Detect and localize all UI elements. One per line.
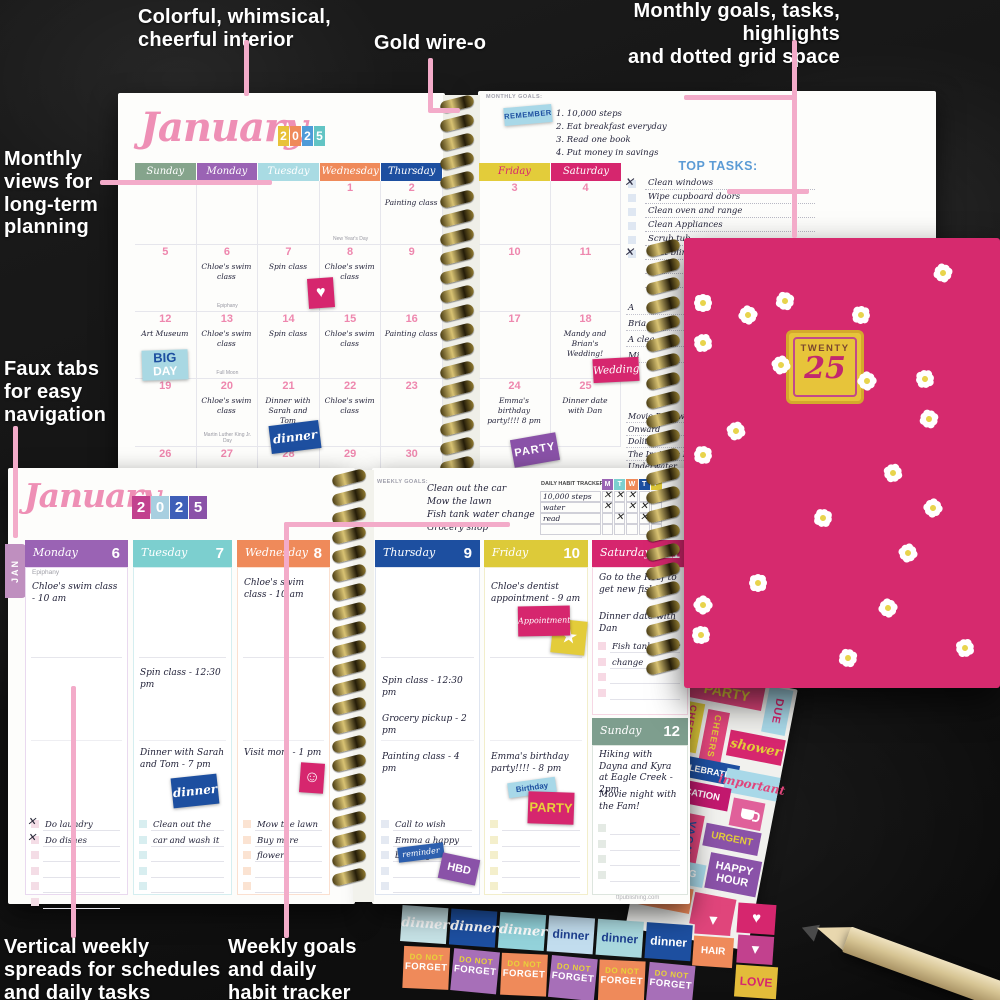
wire-loop <box>331 620 367 640</box>
cup-sticker-icon <box>729 797 766 831</box>
wire-loop <box>645 542 681 562</box>
wire-loop <box>645 504 681 524</box>
wire-loop <box>645 276 681 296</box>
habit-mark-x: ✕ <box>614 490 625 501</box>
calendar-date: 16 <box>381 313 442 325</box>
calendar-date: 13 <box>197 313 258 325</box>
year-digit-tile: 2 <box>278 126 289 146</box>
weekly-day-number: 6 <box>25 545 120 562</box>
monthly-goal-item: 1. 10,000 steps <box>556 109 622 119</box>
wire-loop <box>645 390 681 410</box>
do-not-forget-sticker: DO NOTFORGET <box>500 953 548 997</box>
sheet-sticker: DUE <box>761 686 793 736</box>
weekly-divider <box>381 740 474 741</box>
weekly-divider <box>490 657 582 658</box>
year-digit-tile: 0 <box>290 126 301 146</box>
checklist-underline <box>43 908 120 909</box>
wire-loop <box>439 417 475 437</box>
calendar-date: 6 <box>197 246 258 258</box>
calendar-cell: 13Chloe's swim classFull Moon <box>197 312 259 379</box>
calendar-date: 24 <box>479 380 550 392</box>
weekly-day-number: 8 <box>237 545 322 562</box>
calendar-date: 23 <box>381 380 442 392</box>
sheet-sticker: shower <box>726 730 786 766</box>
habit-row-name: water <box>543 502 565 513</box>
annotation-line <box>428 58 433 112</box>
calendar-date: 4 <box>551 182 620 194</box>
weekly-goal-item: Fish tank water change <box>427 510 535 520</box>
forget-line: FORGET <box>501 968 547 981</box>
do-not-forget-sticker: DO NOTFORGET <box>646 962 696 1000</box>
checklist-box <box>139 867 147 875</box>
calendar-event: Painting class <box>384 329 438 339</box>
monthly-goal-item: 2. Eat breakfast everyday <box>556 122 667 132</box>
wire-loop <box>331 601 367 621</box>
checklist-check-x: ✕ <box>27 815 36 828</box>
do-not-forget-sticker: DO NOTFORGET <box>402 946 450 990</box>
calendar-cell: 15Chloe's swim class <box>320 312 382 379</box>
weekly-event: Dinner with Sarah and Tom - 7 pm <box>140 748 225 771</box>
arrow-down-sticker-icon: ▼ <box>736 935 774 965</box>
calendar-date: 2 <box>381 182 442 194</box>
year-digit-tile: 2 <box>302 126 313 146</box>
checklist-box <box>490 836 498 844</box>
calendar-date: 3 <box>479 182 550 194</box>
calendar-date: 15 <box>320 313 381 325</box>
habit-mark-x: ✕ <box>602 501 613 512</box>
calendar-date: 26 <box>135 448 196 460</box>
wire-loop <box>439 132 475 152</box>
task-text: Wipe cupboard doors <box>648 192 740 202</box>
weekly-event: Movie night with the Fam! <box>599 790 681 813</box>
calendar-cell <box>135 181 197 245</box>
calendar-event: Art Museum <box>138 329 192 339</box>
dinner-strip-sticker: dinner <box>400 905 448 944</box>
calendar-cell: 6Chloe's swim classEpiphany <box>197 245 259 312</box>
weekly-goals-label: WEEKLY GOALS: <box>377 479 428 485</box>
calendar-date: 30 <box>381 448 442 460</box>
calendar-cell: 4 <box>551 181 621 245</box>
checklist-text: Do laundry <box>45 818 120 834</box>
year-digit-tile: 5 <box>314 126 325 146</box>
calendar-date: 12 <box>135 313 196 325</box>
annotation-line <box>100 180 272 185</box>
daisy-icon <box>700 300 706 306</box>
checklist-box <box>243 867 251 875</box>
checklist-underline <box>151 877 224 878</box>
wire-loop <box>645 599 681 619</box>
wire-loop <box>439 379 475 399</box>
weekly-goal-item: Clean out the car <box>427 484 506 494</box>
monthly-goal-item: 4. Put money in savings <box>556 148 658 158</box>
weekly-event: Emma's birthday party!!!! - 8 pm <box>491 752 581 775</box>
calendar-holiday: Full Moon <box>199 370 257 376</box>
checklist-box <box>139 851 147 859</box>
wire-loop <box>331 582 367 602</box>
calendar-holiday: Epiphany <box>199 303 257 309</box>
wire-loop <box>439 246 475 266</box>
badge-inner-frame <box>793 337 857 397</box>
task-checkbox <box>628 208 636 216</box>
calendar-cell <box>197 181 259 245</box>
calendar-date: 21 <box>258 380 319 392</box>
wire-loop <box>439 227 475 247</box>
wire-loop <box>331 677 367 697</box>
checklist-box <box>381 882 389 890</box>
calendar-cell: 16Painting class <box>381 312 443 379</box>
monthly-goal-item: 3. Read one book <box>556 135 631 145</box>
dinner-strip-sticker: dinner <box>498 912 546 951</box>
annotation-line <box>13 426 18 538</box>
calendar-date: 8 <box>320 246 381 258</box>
calendar-event: Spin class <box>261 262 315 272</box>
wire-loop <box>645 238 681 258</box>
checklist-box <box>139 882 147 890</box>
wire-loop <box>645 466 681 486</box>
calendar-holiday: New Year's Day <box>322 236 380 242</box>
checklist-box <box>598 855 606 863</box>
calendar-date: 22 <box>320 380 381 392</box>
calendar-date: 9 <box>381 246 442 258</box>
calendar-cell <box>258 181 320 245</box>
wire-loop <box>331 468 367 488</box>
checklist-box <box>598 689 606 697</box>
habit-mark-cell <box>626 513 637 524</box>
calendar-date: 5 <box>135 246 196 258</box>
monthly-day-header: Friday <box>479 163 550 181</box>
calendar-event: Mandy and Brian's Wedding! <box>554 329 616 359</box>
wire-loop <box>331 791 367 811</box>
annotation-weekly-goals: Weekly goals and daily habit tracker <box>228 936 398 1000</box>
wire-loop <box>645 295 681 315</box>
year-digit-tile: 5 <box>189 496 207 519</box>
checklist-box <box>381 836 389 844</box>
weekly-goal-item: Mow the lawn <box>427 497 492 507</box>
calendar-date: 7 <box>258 246 319 258</box>
party-sticker: PARTY <box>527 791 574 825</box>
checklist-box <box>381 820 389 828</box>
checklist-underline <box>43 877 120 878</box>
checklist-underline <box>502 877 580 878</box>
checklist-text: Do dishes <box>45 834 120 850</box>
heart-sticker-icon: ♥ <box>736 902 776 935</box>
weekly-day-number: 7 <box>133 545 224 562</box>
wire-loop <box>645 561 681 581</box>
wire-loop <box>331 848 367 868</box>
calendar-holiday: Martin Luther King Jr. Day <box>199 432 257 444</box>
calendar-cell: 17 <box>479 312 551 379</box>
calendar-cell: 1New Year's Day <box>320 181 382 245</box>
checklist-box <box>490 867 498 875</box>
weekly-event: Grocery pickup - 2 pm <box>382 714 473 737</box>
wedding-sticker: Wedding <box>592 357 639 383</box>
appointment-sticker: Appointment <box>518 606 571 637</box>
wire-loop <box>439 284 475 304</box>
checklist-underline <box>43 892 120 893</box>
coffee-cup-handle <box>751 811 760 822</box>
calendar-date: 10 <box>479 246 550 258</box>
wire-loop <box>439 189 475 209</box>
habit-mark-x: ✕ <box>602 490 613 501</box>
checklist-box <box>139 820 147 828</box>
habit-tracker-label: DAILY HABIT TRACKER: <box>541 481 605 487</box>
monthly-day-header: Tuesday <box>258 163 319 181</box>
habit-day-tile: M <box>602 479 613 490</box>
wire-loop <box>331 563 367 583</box>
task-checkbox <box>628 194 636 202</box>
checklist-underline <box>502 846 580 847</box>
wire-loop <box>439 436 475 456</box>
checklist-underline <box>610 850 680 851</box>
wire-loop <box>439 398 475 418</box>
planner-cover <box>684 238 1000 688</box>
checklist-underline <box>502 892 580 893</box>
heart-sticker: ♥ <box>307 277 335 309</box>
weekly-divider <box>139 740 226 741</box>
sheet-sticker: important <box>723 768 781 802</box>
habit-row-name: 10,000 steps <box>543 491 592 502</box>
monthly-day-header: Saturday <box>551 163 621 181</box>
arrow-down-sticker-icon: ▼ <box>694 904 732 936</box>
habit-mark-x: ✕ <box>626 501 637 512</box>
calendar-date: 1 <box>320 182 381 194</box>
wire-loop <box>645 257 681 277</box>
checklist-box <box>598 658 606 666</box>
weekly-holiday: Epiphany <box>32 569 59 576</box>
forget-line: FORGET <box>403 961 449 974</box>
weekly-year: 2025 <box>132 496 208 519</box>
annotation-monthly-views: Monthly views for long-term planning <box>4 148 144 239</box>
annotation-line <box>71 686 76 938</box>
checklist-underline <box>502 861 580 862</box>
checklist-box <box>490 882 498 890</box>
top-tasks-label: TOP TASKS: <box>648 159 788 173</box>
calendar-cell: 9 <box>381 245 443 312</box>
monthly-day-header: Monday <box>197 163 258 181</box>
habit-day-tile: W <box>626 479 637 490</box>
calendar-event: Spin class <box>261 329 315 339</box>
weekly-event: Painting class - 4 pm <box>382 752 473 775</box>
year-digit-tile: 0 <box>151 496 169 519</box>
calendar-cell: 14Spin class <box>258 312 320 379</box>
task-check-x: ✕ <box>624 245 634 259</box>
checklist-box <box>243 836 251 844</box>
calendar-event: Painting class <box>384 198 438 208</box>
task-checkbox <box>628 236 636 244</box>
monthly-day-header: Thursday <box>381 163 442 181</box>
checklist-underline <box>502 830 580 831</box>
annotation-line <box>727 189 809 194</box>
checklist-box <box>490 851 498 859</box>
calendar-cell: 3 <box>479 181 551 245</box>
annotation-line <box>244 40 249 96</box>
checklist-underline <box>151 861 224 862</box>
do-not-forget-sticker: DO NOTFORGET <box>450 948 500 994</box>
wire-loop <box>645 485 681 505</box>
wire-loop <box>331 867 367 887</box>
task-text: Clean oven and range <box>648 206 742 216</box>
habit-mark-cell <box>626 524 637 535</box>
habit-mark-cell <box>602 524 613 535</box>
wire-loop <box>331 772 367 792</box>
weekly-divider <box>31 740 122 741</box>
weekly-divider <box>490 740 582 741</box>
habit-mark-x: ✕ <box>626 490 637 501</box>
wire-loop <box>439 208 475 228</box>
checklist-box <box>381 867 389 875</box>
calendar-cell: 20Chloe's swim classMartin Luther King J… <box>197 379 259 447</box>
wire-loop <box>645 580 681 600</box>
checklist-box <box>598 840 606 848</box>
daisy-icon <box>755 580 761 586</box>
task-underline <box>645 231 815 232</box>
wire-loop <box>439 170 475 190</box>
weekly-event: Spin class - 12:30 pm <box>382 676 473 699</box>
calendar-event: Chloe's swim class <box>200 396 254 416</box>
weekly-day-number: 12 <box>592 723 680 740</box>
wire-loop <box>331 734 367 754</box>
annotation-line <box>684 95 796 100</box>
wire-loop <box>645 352 681 372</box>
checklist-underline <box>393 892 472 893</box>
checklist-box <box>381 851 389 859</box>
calendar-date: 18 <box>551 313 620 325</box>
task-underline <box>645 203 815 204</box>
forget-line: FORGET <box>599 975 645 988</box>
checklist-underline <box>43 861 120 862</box>
checklist-underline <box>610 834 680 835</box>
wire-loop <box>645 371 681 391</box>
annotation-gold-wireo: Gold wire-o <box>374 32 544 55</box>
annotation-line <box>284 522 289 938</box>
weekly-day-number: 10 <box>484 545 580 562</box>
sheet-sticker: HAPPY HOUR <box>704 852 762 897</box>
wire-loop <box>439 322 475 342</box>
habit-mark-x: ✕ <box>614 512 625 523</box>
calendar-date: 17 <box>479 313 550 325</box>
annotation-line <box>284 522 510 527</box>
jan-faux-tab: JAN <box>5 544 26 598</box>
dinner-strip-sticker: dinner <box>596 919 644 958</box>
calendar-event: Chloe's swim class <box>323 396 377 416</box>
wire-loop <box>645 428 681 448</box>
weekly-divider <box>381 657 474 658</box>
weekly-divider <box>139 657 226 658</box>
checklist-box <box>598 673 606 681</box>
weekly-divider <box>31 657 122 658</box>
calendar-date: 20 <box>197 380 258 392</box>
wire-loop <box>439 113 475 133</box>
cover-year-badge: TWENTY 25 <box>786 330 864 404</box>
sheet-sticker: CHEERS <box>698 709 730 764</box>
calendar-event: Chloe's swim class <box>323 329 377 349</box>
annotation-line <box>428 108 460 113</box>
habit-row-name-cell <box>540 524 601 535</box>
wire-loop <box>331 715 367 735</box>
wire-loop <box>645 637 681 657</box>
monthly-wire-o <box>438 96 478 480</box>
calendar-cell: 5 <box>135 245 197 312</box>
checklist-text: Buy more flowers <box>257 834 322 865</box>
wire-loop <box>439 151 475 171</box>
wire-loop <box>439 303 475 323</box>
annotation-weekly-spreads: Vertical weekly spreads for schedules an… <box>4 936 230 1000</box>
cover-wire-o <box>644 240 684 686</box>
wire-loop <box>331 487 367 507</box>
wire-loop <box>331 810 367 830</box>
wire-loop <box>439 360 475 380</box>
coffee-cup-icon <box>740 808 755 820</box>
wire-loop <box>331 525 367 545</box>
do-not-forget-sticker: DO NOTFORGET <box>548 955 598 1000</box>
calendar-event: Emma's birthday party!!!! 8 pm <box>482 396 546 426</box>
weekly-wire-o <box>330 470 370 902</box>
checklist-box <box>31 882 39 890</box>
checklist-text: Mow the lawn <box>257 818 322 834</box>
wire-loop <box>331 753 367 773</box>
checklist-box <box>31 867 39 875</box>
checklist-box <box>598 871 606 879</box>
dinner-strip-sticker: dinner <box>547 915 595 954</box>
dinner-sticker: dinner <box>171 774 220 809</box>
calendar-event: Dinner date with Dan <box>554 396 616 416</box>
love-sticker: LOVE <box>734 964 778 999</box>
wire-loop <box>331 544 367 564</box>
checklist-underline <box>610 881 680 882</box>
calendar-cell: 11 <box>551 245 621 312</box>
task-checkbox <box>628 222 636 230</box>
checklist-box <box>31 898 39 906</box>
checklist-text: Clean out the car and wash it <box>153 818 224 849</box>
habit-row-name: read <box>543 513 560 524</box>
wire-loop <box>645 333 681 353</box>
dinner-strip-sticker: dinner <box>644 922 692 961</box>
checklist-box <box>490 820 498 828</box>
checklist-underline <box>151 892 224 893</box>
checklist-box <box>598 824 606 832</box>
wire-loop <box>439 341 475 361</box>
wire-loop <box>331 696 367 716</box>
calendar-cell: 22Chloe's swim class <box>320 379 382 447</box>
calendar-event: Chloe's swim class <box>200 262 254 282</box>
task-underline <box>645 217 815 218</box>
habit-mark-cell <box>614 524 625 535</box>
hair-sticker: HAIR <box>692 935 734 968</box>
calendar-date: 29 <box>320 448 381 460</box>
weekly-event: Chloe's dentist appointment - 9 am <box>491 582 581 605</box>
wire-loop <box>331 639 367 659</box>
checklist-box <box>139 836 147 844</box>
calendar-cell: 10 <box>479 245 551 312</box>
wire-loop <box>645 523 681 543</box>
task-check-x: ✕ <box>624 175 634 189</box>
smiley-sticker: ☺ <box>299 762 325 794</box>
habit-day-tile: T <box>614 479 625 490</box>
checklist-box <box>243 851 251 859</box>
monthly-goals-label: MONTHLY GOALS: <box>486 94 543 100</box>
checklist-box <box>243 820 251 828</box>
calendar-cell: 25Dinner date with Dan <box>551 379 621 447</box>
checklist-box <box>598 642 606 650</box>
notes-fragment: A <box>628 303 634 313</box>
wire-loop <box>439 265 475 285</box>
monthly-year: 2025 <box>278 126 326 146</box>
wire-loop <box>645 409 681 429</box>
calendar-date: 11 <box>551 246 620 258</box>
task-text: Clean Appliances <box>648 220 723 230</box>
weekly-event: Spin class - 12:30 pm <box>140 668 225 691</box>
calendar-date: 14 <box>258 313 319 325</box>
